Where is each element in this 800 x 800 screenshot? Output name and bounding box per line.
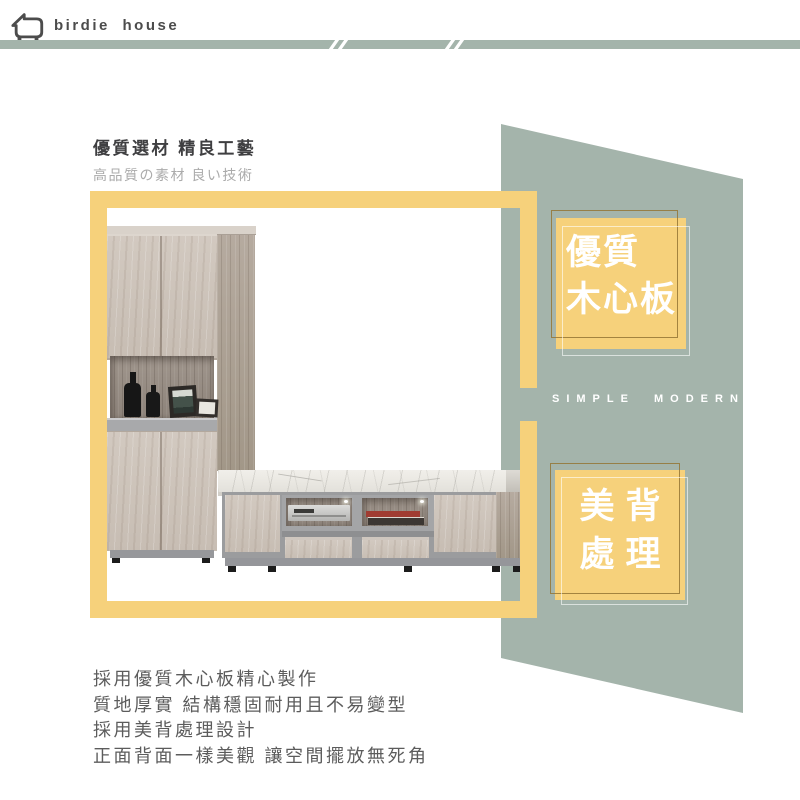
badge-label-line1: 美背 bbox=[555, 483, 685, 531]
badge-label-line2: 處理 bbox=[555, 531, 685, 579]
description-line: 採用美背處理設計 bbox=[93, 718, 429, 744]
promo-banner: birdie house 優質選材 精良工藝 高品質の素材 良い技術 bbox=[0, 0, 800, 800]
feature-description: 採用優質木心板精心製作 質地厚實 結構穩固耐用且不易變型 採用美背處理設計 正面… bbox=[93, 667, 429, 769]
description-line: 質地厚實 結構穩固耐用且不易變型 bbox=[93, 693, 429, 719]
badge-label: 美背 處理 bbox=[555, 483, 685, 579]
description-line: 採用優質木心板精心製作 bbox=[93, 667, 429, 693]
description-line: 正面背面一樣美觀 讓空間擺放無死角 bbox=[93, 744, 429, 770]
